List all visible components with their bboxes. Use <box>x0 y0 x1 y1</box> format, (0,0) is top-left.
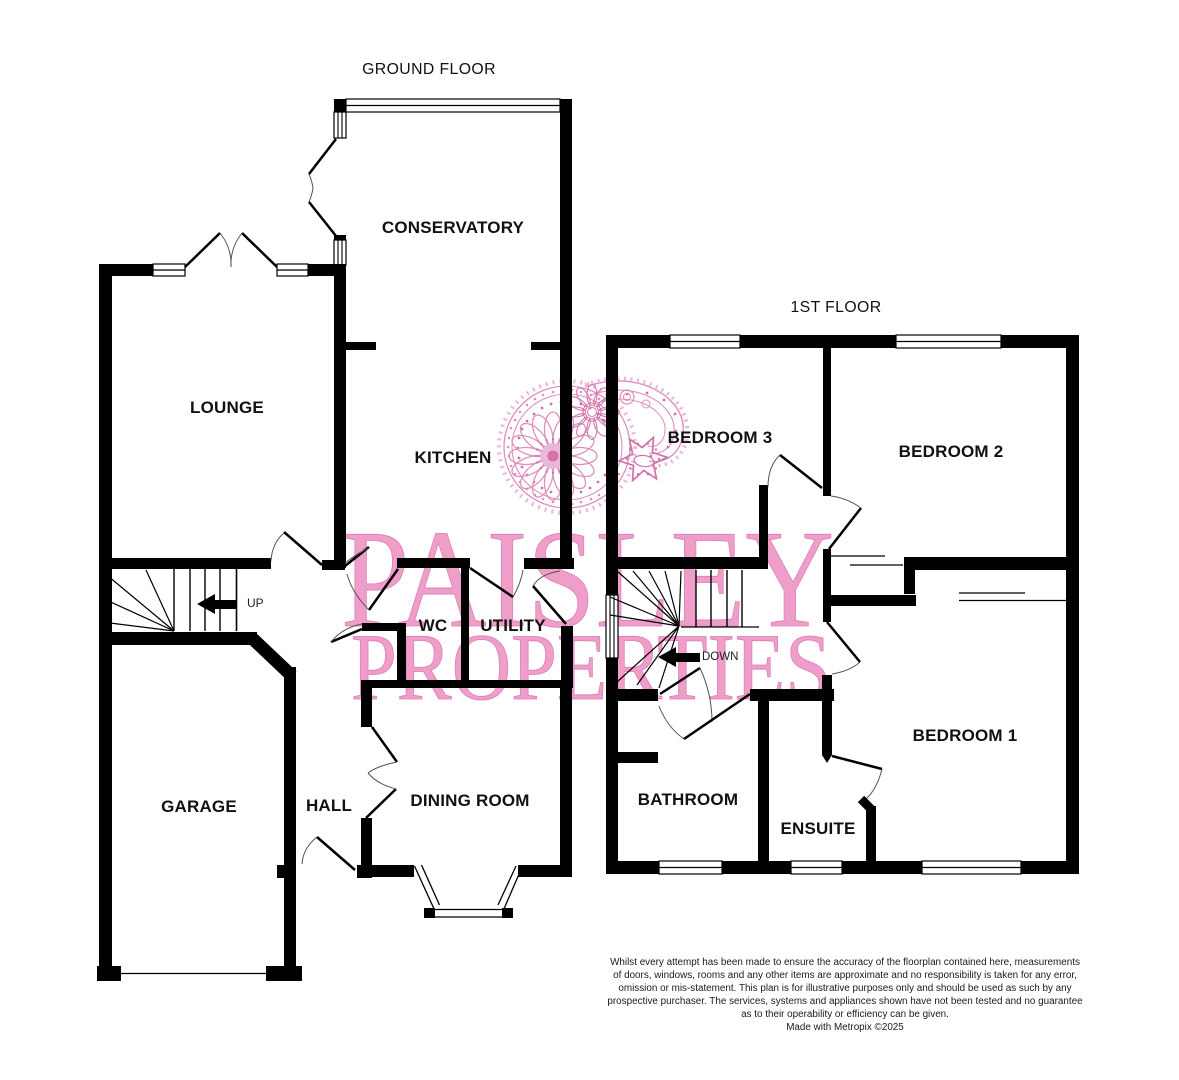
svg-text:of doors, windows, rooms and a: of doors, windows, rooms and any other i… <box>613 970 1077 981</box>
svg-text:BEDROOM 1: BEDROOM 1 <box>913 726 1018 745</box>
svg-text:UP: UP <box>247 596 264 610</box>
svg-text:CONSERVATORY: CONSERVATORY <box>382 218 525 237</box>
svg-text:BEDROOM 3: BEDROOM 3 <box>668 428 773 447</box>
svg-text:UTILITY: UTILITY <box>480 616 546 635</box>
svg-text:ENSUITE: ENSUITE <box>780 819 855 838</box>
svg-text:Whilst every attempt has been: Whilst every attempt has been made to en… <box>610 957 1080 968</box>
svg-text:prospective purchaser. The ser: prospective purchaser. The services, sys… <box>607 996 1083 1007</box>
svg-text:as to their operability or eff: as to their operability or efficiency ca… <box>741 1009 949 1020</box>
svg-text:GARAGE: GARAGE <box>161 797 237 816</box>
svg-text:BEDROOM 2: BEDROOM 2 <box>899 442 1004 461</box>
svg-text:Made with Metropix ©2025: Made with Metropix ©2025 <box>786 1022 904 1033</box>
svg-text:GROUND FLOOR: GROUND FLOOR <box>362 61 496 78</box>
svg-text:DINING ROOM: DINING ROOM <box>410 791 529 810</box>
svg-text:BATHROOM: BATHROOM <box>638 790 738 809</box>
svg-text:omission or mis-statement. Thi: omission or mis-statement. This plan is … <box>618 983 1071 994</box>
svg-text:KITCHEN: KITCHEN <box>415 448 492 467</box>
svg-text:LOUNGE: LOUNGE <box>190 398 264 417</box>
svg-text:1ST FLOOR: 1ST FLOOR <box>790 299 881 316</box>
svg-text:DOWN: DOWN <box>702 651 738 663</box>
svg-text:HALL: HALL <box>306 796 352 815</box>
svg-text:WC: WC <box>419 616 448 635</box>
